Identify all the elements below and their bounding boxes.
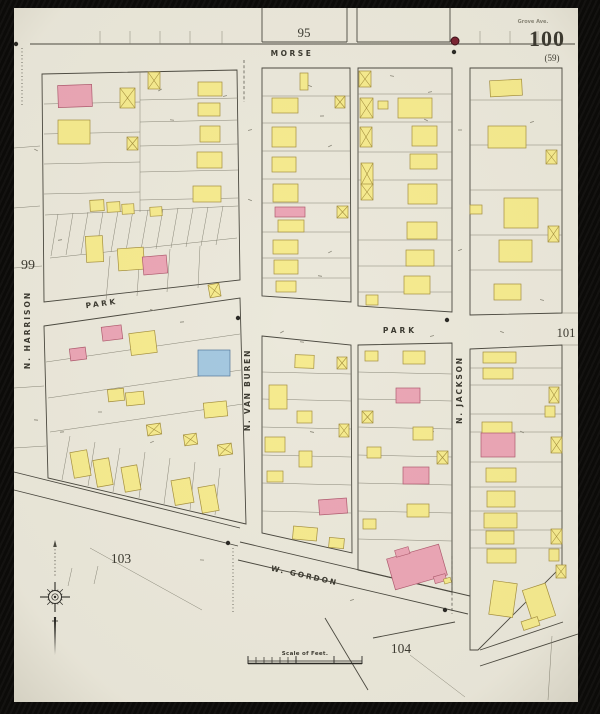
paper-vignette — [14, 8, 578, 702]
map-canvas: 100(59)Grove Ave.95MORSE99101103104N. HA… — [0, 0, 600, 714]
sanborn-map-sheet: 100(59)Grove Ave.95MORSE99101103104N. HA… — [0, 0, 600, 714]
